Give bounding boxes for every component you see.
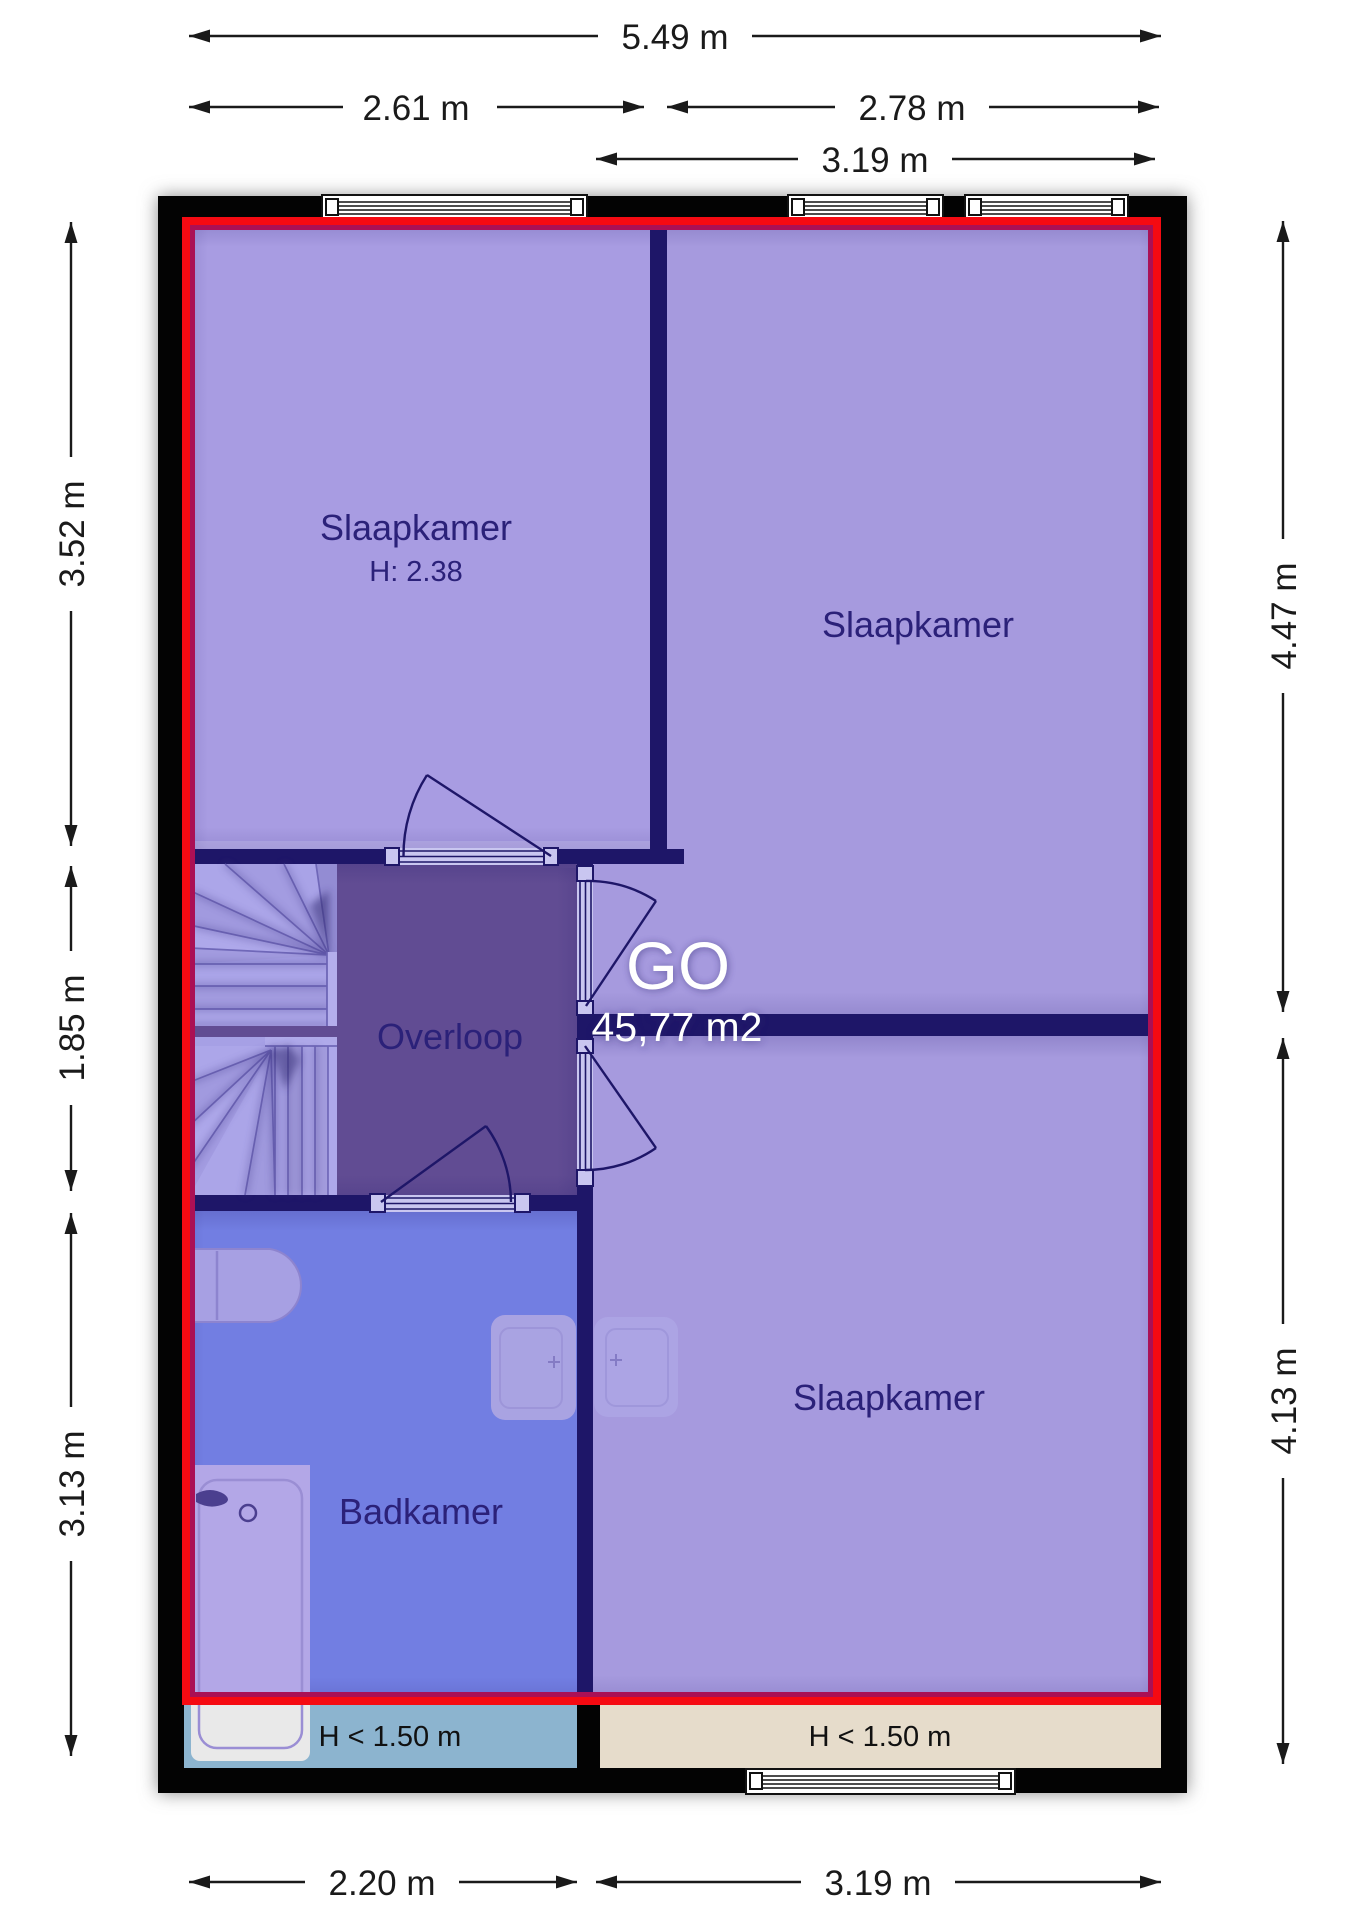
svg-text:3.13 m: 3.13 m [53, 1431, 92, 1538]
svg-text:4.13 m: 4.13 m [1265, 1348, 1304, 1455]
svg-text:4.47 m: 4.47 m [1265, 563, 1304, 670]
svg-text:3.19 m: 3.19 m [825, 1864, 932, 1903]
svg-text:Badkamer: Badkamer [339, 1491, 503, 1532]
svg-text:5.49 m: 5.49 m [622, 18, 729, 57]
svg-text:1.85 m: 1.85 m [53, 975, 92, 1082]
svg-text:H < 1.50 m: H < 1.50 m [809, 1721, 952, 1753]
svg-text:GO: GO [626, 929, 730, 1004]
svg-text:Overloop: Overloop [377, 1016, 523, 1057]
svg-text:45,77 m2: 45,77 m2 [592, 1004, 763, 1050]
svg-text:H < 1.50 m: H < 1.50 m [319, 1721, 462, 1753]
svg-text:2.20 m: 2.20 m [329, 1864, 436, 1903]
svg-text:Slaapkamer: Slaapkamer [320, 507, 512, 548]
svg-text:2.78 m: 2.78 m [859, 89, 966, 128]
svg-text:2.61 m: 2.61 m [363, 89, 470, 128]
svg-text:3.52 m: 3.52 m [53, 481, 92, 588]
svg-text:Slaapkamer: Slaapkamer [822, 604, 1014, 645]
svg-text:Slaapkamer: Slaapkamer [793, 1377, 985, 1418]
svg-text:3.19 m: 3.19 m [822, 141, 929, 180]
svg-text:H: 2.38: H: 2.38 [369, 556, 463, 588]
